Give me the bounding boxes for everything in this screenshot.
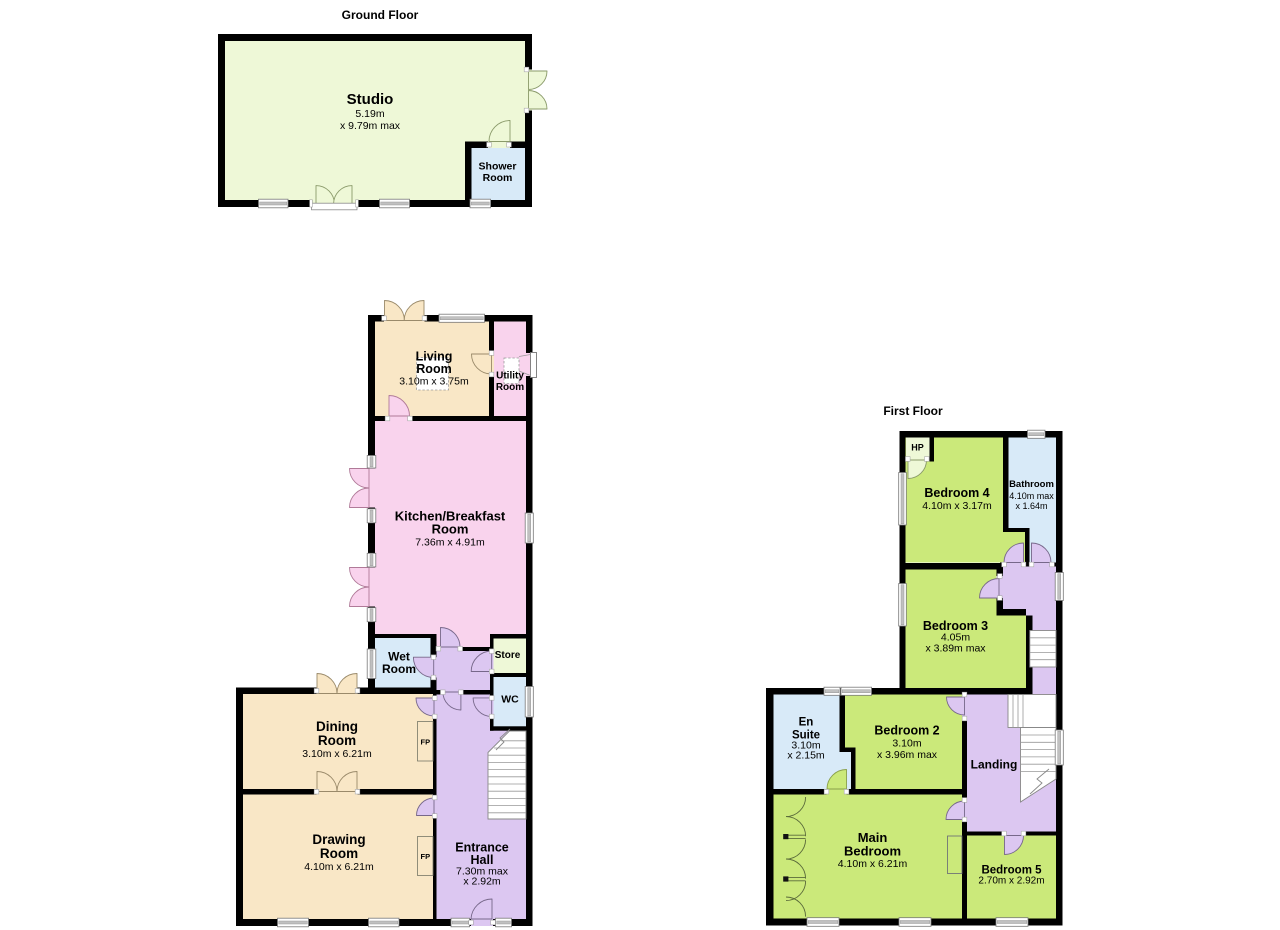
svg-text:2.70m x 2.92m: 2.70m x 2.92m: [978, 876, 1044, 887]
svg-text:Room: Room: [496, 382, 524, 393]
svg-text:Room: Room: [382, 662, 416, 676]
svg-text:4.10m x 6.21m: 4.10m x 6.21m: [304, 861, 374, 873]
svg-text:x 3.96m max: x 3.96m max: [877, 749, 938, 761]
svg-text:Landing: Landing: [971, 758, 1018, 772]
svg-text:x 1.64m: x 1.64m: [1015, 501, 1047, 511]
svg-text:3.10m: 3.10m: [892, 738, 921, 750]
svg-text:FP: FP: [421, 738, 431, 747]
svg-text:Bathroom: Bathroom: [1009, 479, 1054, 490]
svg-text:Room: Room: [432, 522, 469, 537]
svg-text:x 9.79m max: x 9.79m max: [340, 120, 401, 132]
svg-text:Drawing: Drawing: [312, 832, 365, 847]
svg-text:Room: Room: [483, 172, 513, 184]
svg-text:Bedroom 4: Bedroom 4: [924, 486, 989, 500]
svg-text:Room: Room: [320, 846, 358, 861]
svg-text:FP: FP: [421, 852, 431, 861]
svg-text:Ground Floor: Ground Floor: [342, 8, 419, 22]
svg-text:First Floor: First Floor: [883, 404, 943, 418]
svg-text:x 2.15m: x 2.15m: [787, 750, 825, 762]
svg-text:4.10m x 3.17m: 4.10m x 3.17m: [922, 500, 992, 512]
svg-text:5.19m: 5.19m: [355, 108, 384, 120]
svg-text:Dining: Dining: [316, 719, 358, 734]
svg-text:Room: Room: [318, 733, 356, 748]
svg-text:x 2.92m: x 2.92m: [463, 876, 501, 888]
svg-text:x 3.89m max: x 3.89m max: [925, 643, 986, 655]
svg-text:Bedroom 2: Bedroom 2: [874, 724, 939, 738]
svg-text:Utility: Utility: [496, 371, 524, 382]
svg-text:3.10m x 6.21m: 3.10m x 6.21m: [302, 748, 372, 760]
svg-text:Shower: Shower: [479, 161, 517, 173]
svg-text:HP: HP: [911, 443, 924, 453]
svg-text:WC: WC: [501, 694, 519, 706]
svg-text:4.10m x 6.21m: 4.10m x 6.21m: [838, 858, 908, 870]
svg-text:Bedroom: Bedroom: [844, 844, 901, 859]
svg-text:Store: Store: [495, 650, 521, 661]
svg-text:7.36m x 4.91m: 7.36m x 4.91m: [415, 537, 485, 549]
svg-text:Room: Room: [416, 362, 451, 376]
svg-text:En: En: [799, 717, 814, 729]
svg-text:3.10m x 3.75m: 3.10m x 3.75m: [399, 376, 469, 388]
svg-text:4.10m max: 4.10m max: [1009, 491, 1054, 501]
svg-text:Studio: Studio: [347, 91, 394, 108]
